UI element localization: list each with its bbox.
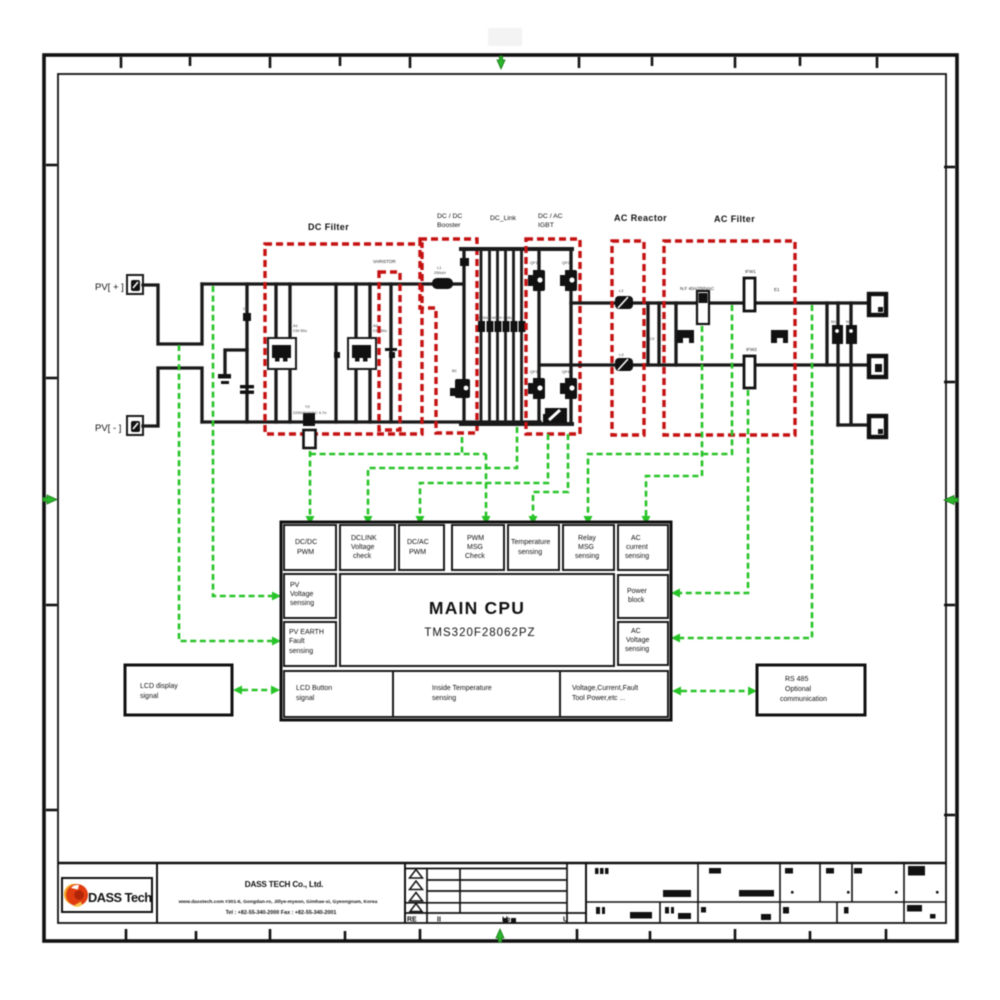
- svg-text:2200/310VAC 4.7n: 2200/310VAC 4.7n: [293, 410, 327, 415]
- svg-text:DC_Link: DC_Link: [490, 215, 517, 222]
- svg-text:TMS320F28062PZ: TMS320F28062PZ: [424, 627, 535, 639]
- svg-text:Tool Power,etc ...: Tool Power,etc ...: [572, 695, 625, 702]
- svg-text:PWM: PWM: [297, 549, 314, 556]
- svg-text:PWM: PWM: [467, 535, 484, 542]
- svg-text:AC: AC: [631, 535, 641, 542]
- svg-text:CX: CX: [649, 336, 655, 341]
- svg-text:DC/DC: DC/DC: [295, 539, 317, 546]
- svg-text:signal: signal: [296, 695, 315, 702]
- svg-text:II: II: [437, 917, 441, 924]
- svg-text:L2: L2: [619, 288, 624, 293]
- svg-text:LCD Button: LCD Button: [296, 685, 332, 692]
- svg-text:2200uF/400V x 6EA: 2200uF/400V x 6EA: [478, 315, 514, 320]
- svg-text:Optional: Optional: [785, 686, 812, 693]
- svg-text:PV: PV: [290, 582, 300, 589]
- svg-text:Temperature: Temperature: [511, 539, 550, 546]
- svg-text:IFW1: IFW1: [745, 269, 756, 274]
- svg-text:check: check: [353, 553, 372, 560]
- svg-text:N2: N2: [846, 319, 852, 324]
- svg-text:B1: B1: [452, 368, 458, 373]
- svg-text:MAIN CPU: MAIN CPU: [429, 598, 525, 618]
- svg-text:AC: AC: [631, 628, 641, 635]
- svg-text:Check: Check: [465, 553, 485, 560]
- svg-text:RE: RE: [407, 917, 417, 924]
- svg-text:QF1: QF1: [530, 260, 539, 265]
- svg-text:DC / DC: DC / DC: [437, 213, 462, 220]
- svg-text:sensing: sensing: [518, 549, 542, 556]
- svg-text:Voltage,Current,Fault: Voltage,Current,Fault: [572, 685, 638, 692]
- svg-text:PV[ + ]: PV[ + ]: [95, 282, 124, 293]
- svg-text:DC Filter: DC Filter: [308, 222, 349, 232]
- svg-text:PV EARTH: PV EARTH: [289, 629, 324, 636]
- svg-text:AC Filter: AC Filter: [714, 214, 755, 224]
- svg-text:DCLINK: DCLINK: [351, 535, 377, 542]
- svg-text:MSG: MSG: [578, 544, 594, 551]
- svg-text:IFW2: IFW2: [746, 347, 757, 352]
- svg-text:DC / AC: DC / AC: [538, 213, 563, 220]
- svg-text:Tel : +82-55-340-2000 Fax : +: Tel : +82-55-340-2000 Fax : +82-55-340-2…: [226, 910, 337, 916]
- svg-text:DC/AC: DC/AC: [407, 539, 429, 546]
- svg-text:250uH: 250uH: [434, 270, 446, 275]
- svg-text:RS 485: RS 485: [785, 676, 808, 683]
- svg-text:Booster: Booster: [437, 222, 461, 229]
- svg-text:QF2: QF2: [562, 260, 571, 265]
- svg-text:E1: E1: [774, 287, 780, 292]
- svg-text:N1: N1: [831, 319, 837, 324]
- svg-text:Voltage: Voltage: [290, 591, 313, 598]
- svg-text:DASS Tech: DASS Tech: [88, 890, 152, 905]
- svg-text:MSG: MSG: [467, 544, 483, 551]
- svg-text:U: U: [563, 917, 568, 924]
- svg-text:Inside Temperature: Inside Temperature: [432, 685, 492, 692]
- svg-text:QF3: QF3: [530, 369, 539, 374]
- svg-text:Y2: Y2: [305, 404, 311, 409]
- svg-text:block: block: [628, 597, 645, 604]
- svg-text:AC Reactor: AC Reactor: [614, 213, 667, 223]
- svg-text:VARISTOR: VARISTOR: [373, 259, 396, 264]
- svg-text:LCD display: LCD display: [140, 683, 178, 690]
- svg-text:PV[ - ]: PV[ - ]: [95, 423, 121, 434]
- svg-text:Fault: Fault: [289, 638, 305, 645]
- svg-text:Voltage: Voltage: [626, 637, 649, 644]
- svg-text:sensing: sensing: [290, 600, 314, 607]
- svg-text:Voltage: Voltage: [351, 544, 374, 551]
- svg-text:L3: L3: [619, 352, 624, 357]
- svg-text:sensing: sensing: [625, 646, 649, 653]
- svg-text:Power: Power: [627, 588, 648, 595]
- svg-text:QF4: QF4: [562, 369, 571, 374]
- svg-text:signal: signal: [140, 693, 159, 700]
- svg-text:current: current: [626, 544, 648, 551]
- svg-text:DASS TECH Co., Ltd.: DASS TECH Co., Ltd.: [245, 880, 324, 889]
- svg-text:sensing: sensing: [625, 553, 649, 560]
- svg-text:IGBT: IGBT: [538, 222, 554, 229]
- svg-text:Relay: Relay: [578, 535, 596, 542]
- svg-text:www.dasstech.com #301-6, Gong: www.dasstech.com #301-6, Gongdan-ro, Jil…: [178, 899, 378, 905]
- svg-text:sensing: sensing: [432, 695, 456, 702]
- svg-text:CM 50u: CM 50u: [293, 328, 307, 333]
- svg-text:PWM: PWM: [409, 549, 426, 556]
- svg-text:sensing: sensing: [289, 648, 313, 655]
- svg-text:communication: communication: [780, 696, 827, 703]
- svg-text:C1: C1: [243, 306, 249, 311]
- svg-text:sensing: sensing: [575, 553, 599, 560]
